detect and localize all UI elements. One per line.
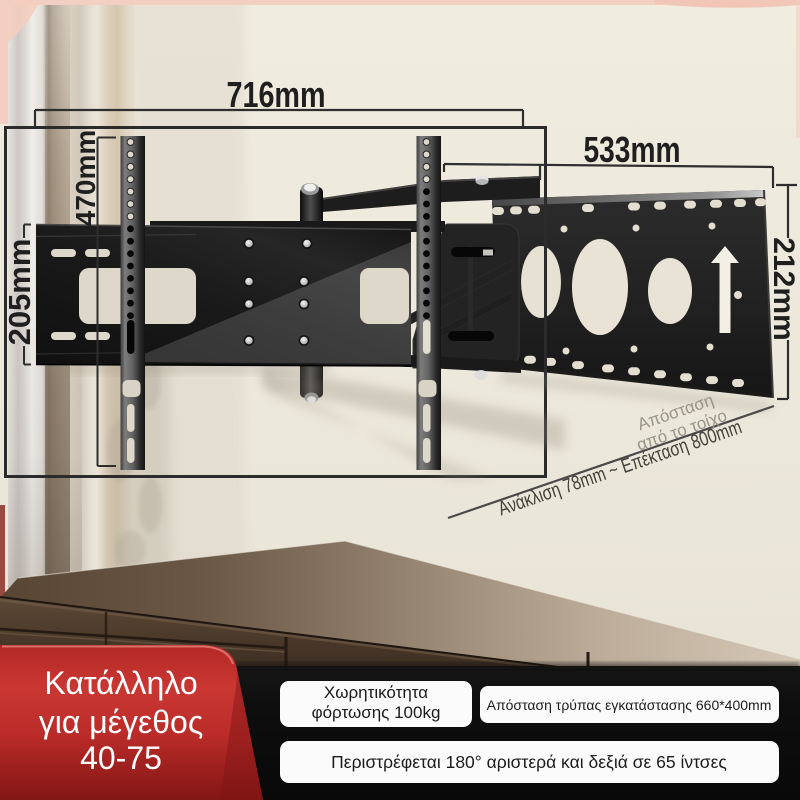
svg-text:για μέγεθος: για μέγεθος: [39, 704, 203, 740]
svg-text:φόρτωσης 100kg: φόρτωσης 100kg: [312, 703, 441, 722]
svg-text:40-75: 40-75: [80, 740, 162, 776]
svg-text:Περιστρέφεται 180° αριστερά κα: Περιστρέφεται 180° αριστερά και δεξιά σε…: [331, 752, 727, 772]
svg-text:Απόσταση τρύπας εγκατάστασης 6: Απόσταση τρύπας εγκατάστασης 660*400mm: [487, 697, 772, 713]
svg-text:533mm: 533mm: [584, 129, 681, 170]
svg-text:212mm: 212mm: [767, 237, 800, 340]
svg-text:205mm: 205mm: [2, 239, 37, 346]
svg-text:Χωρητικότητα: Χωρητικότητα: [324, 683, 428, 702]
svg-text:Κατάλληλο: Κατάλληλο: [44, 665, 197, 701]
svg-text:470mm: 470mm: [70, 130, 101, 227]
svg-text:716mm: 716mm: [227, 74, 326, 115]
